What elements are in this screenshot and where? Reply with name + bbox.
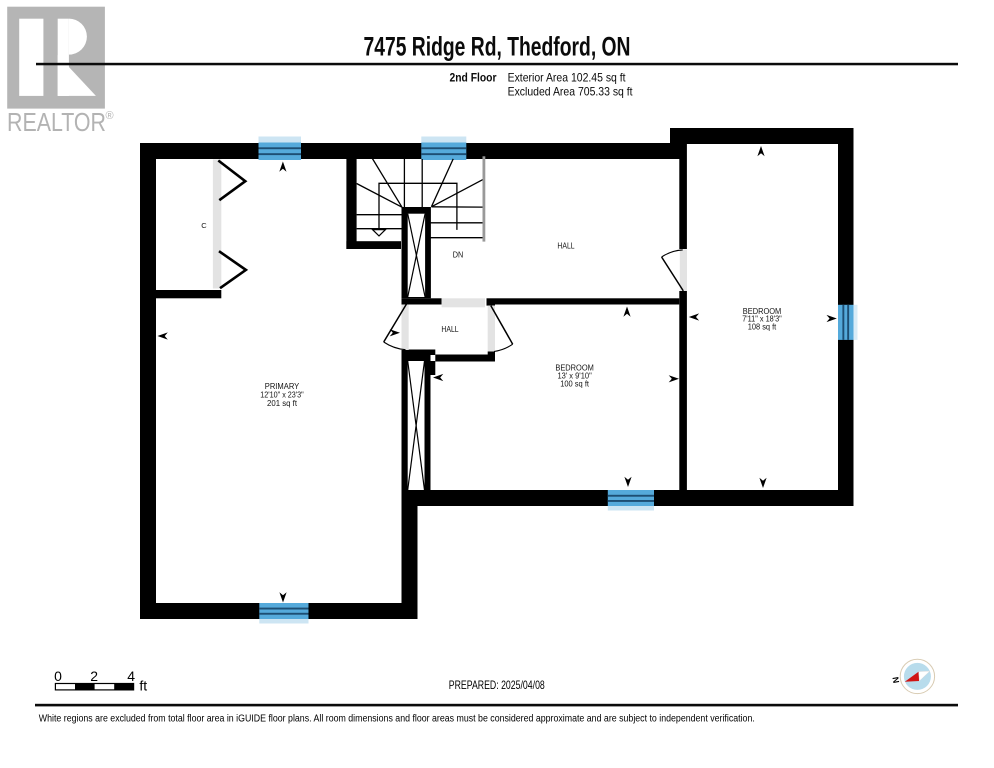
svg-text:Exterior Area 102.45 sq ft: Exterior Area 102.45 sq ft (508, 71, 627, 85)
svg-text:C: C (201, 221, 207, 230)
svg-text:2: 2 (90, 668, 98, 684)
svg-text:HALL: HALL (557, 241, 574, 251)
svg-text:DN: DN (453, 250, 464, 260)
svg-text:2nd Floor: 2nd Floor (450, 71, 497, 85)
svg-text:108 sq ft: 108 sq ft (748, 321, 777, 331)
svg-text:4: 4 (127, 668, 135, 684)
svg-text:PREPARED: 2025/04/08: PREPARED: 2025/04/08 (449, 678, 545, 692)
svg-text:100 sq ft: 100 sq ft (560, 379, 589, 389)
svg-text:7475 Ridge Rd, Thedford, ON: 7475 Ridge Rd, Thedford, ON (364, 32, 631, 62)
svg-text:201 sq ft: 201 sq ft (267, 398, 298, 408)
svg-text:®: ® (106, 110, 114, 122)
svg-text:HALL: HALL (441, 324, 458, 334)
svg-text:White regions are excluded fro: White regions are excluded from total fl… (39, 714, 755, 725)
svg-text:Excluded Area 705.33 sq ft: Excluded Area 705.33 sq ft (508, 84, 634, 98)
svg-text:0: 0 (54, 668, 62, 684)
svg-text:ft: ft (139, 678, 147, 694)
svg-text:REALTOR: REALTOR (7, 107, 106, 137)
